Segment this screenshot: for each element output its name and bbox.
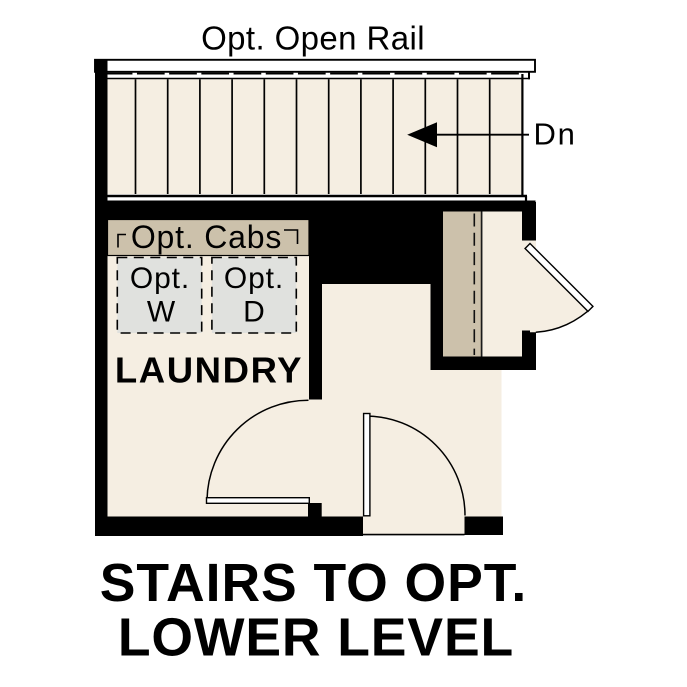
svg-text:Opt. Open Rail: Opt. Open Rail	[201, 20, 425, 57]
svg-text:Opt.: Opt.	[130, 262, 190, 295]
svg-text:Dn: Dn	[534, 117, 577, 152]
svg-text:W: W	[147, 296, 176, 329]
svg-text:LOWER LEVEL: LOWER LEVEL	[118, 608, 514, 667]
svg-text:Opt. Cabs: Opt. Cabs	[131, 219, 282, 255]
svg-text:LAUNDRY: LAUNDRY	[115, 350, 303, 391]
svg-text:D: D	[243, 296, 265, 329]
svg-text:STAIRS TO OPT.: STAIRS TO OPT.	[100, 554, 527, 613]
svg-text:Opt.: Opt.	[224, 262, 284, 295]
